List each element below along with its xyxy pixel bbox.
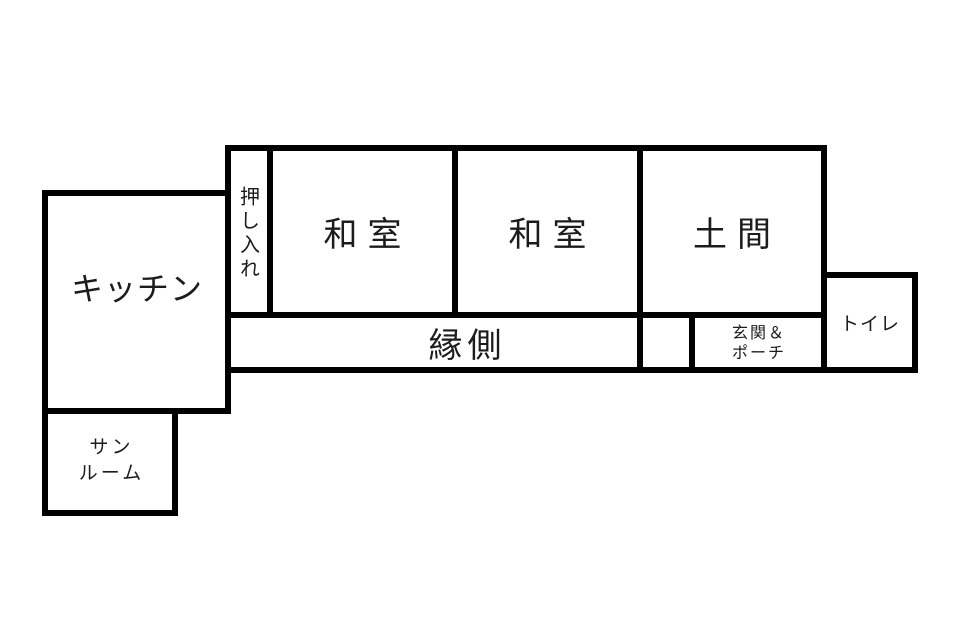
- room-washitsu-left-label: 和室: [324, 207, 412, 256]
- room-engawa-label: 縁側: [429, 318, 507, 367]
- room-vestibule-unlabeled: [637, 312, 695, 373]
- room-engawa: 縁側: [225, 312, 643, 373]
- room-sunroom-label-line1: サン: [79, 434, 144, 460]
- room-toilet-label: トイレ: [840, 309, 900, 336]
- room-washitsu-right: 和室: [452, 145, 643, 318]
- room-kitchen: キッチン: [42, 190, 231, 414]
- room-sunroom-label-line2: ルーム: [79, 460, 144, 486]
- room-toilet: トイレ: [821, 272, 918, 373]
- room-closet: 押し入れ: [225, 145, 273, 318]
- room-sunroom: サン ルーム: [42, 408, 178, 516]
- room-washitsu-left: 和室: [267, 145, 458, 318]
- room-genkan-porch-label: 玄関＆ ポーチ: [732, 323, 786, 363]
- room-washitsu-right-label: 和室: [509, 207, 597, 256]
- floor-plan-canvas: 押し入れ 和室 和室 土間 キッチン 縁側 玄関＆ ポーチ トイレ サン ルーム: [0, 0, 960, 640]
- room-sunroom-label: サン ルーム: [79, 434, 144, 486]
- room-genkan-porch-label-line1: 玄関＆: [732, 323, 786, 343]
- room-genkan-porch-label-line2: ポーチ: [732, 343, 786, 363]
- room-genkan-porch: 玄関＆ ポーチ: [689, 312, 827, 373]
- room-doma: 土間: [637, 145, 827, 318]
- room-doma-label: 土間: [693, 207, 781, 256]
- room-closet-label: 押し入れ: [235, 186, 264, 282]
- room-kitchen-label: キッチン: [71, 264, 203, 310]
